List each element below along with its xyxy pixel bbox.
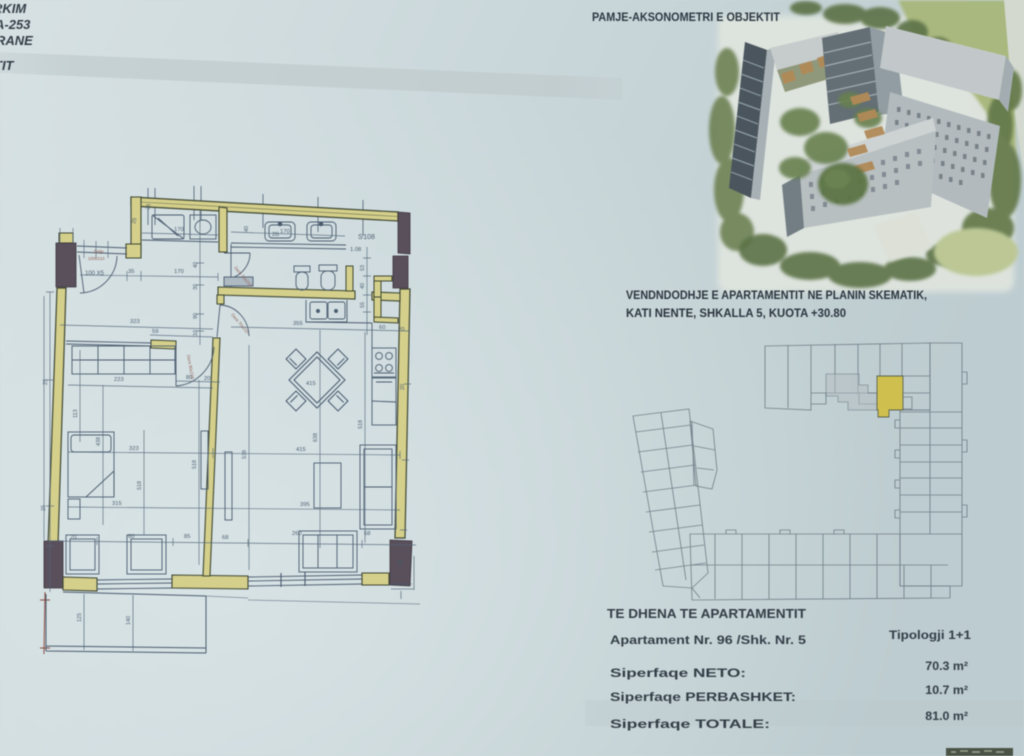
svg-text:Apartament Nr. 96 /Shk. Nr. 5: Apartament Nr. 96 /Shk. Nr. 5 — [610, 633, 806, 647]
svg-text:638: 638 — [313, 433, 319, 442]
svg-text:40: 40 — [244, 226, 250, 232]
svg-text:100 X5: 100 X5 — [85, 271, 105, 277]
svg-text:355: 355 — [293, 321, 303, 327]
svg-text:10.7 m²: 10.7 m² — [925, 683, 968, 697]
svg-text:68: 68 — [222, 535, 228, 541]
svg-text:Tipologji 1+1: Tipologji 1+1 — [889, 628, 971, 642]
svg-text:53: 53 — [360, 265, 366, 271]
svg-text:20: 20 — [400, 384, 406, 390]
svg-text:10: 10 — [193, 330, 199, 336]
svg-text:TIT: TIT — [0, 58, 15, 73]
svg-text:20: 20 — [398, 327, 404, 333]
svg-text:20: 20 — [204, 376, 210, 382]
svg-text:100x210: 100x210 — [88, 256, 105, 261]
svg-text:25: 25 — [43, 379, 49, 385]
svg-text:538: 538 — [242, 450, 248, 459]
svg-text:RKIM: RKIM — [0, 1, 27, 16]
svg-text:RANE: RANE — [0, 33, 33, 48]
svg-text:S 108: S 108 — [358, 234, 375, 241]
svg-text:85: 85 — [184, 534, 190, 540]
svg-text:25: 25 — [41, 505, 47, 511]
svg-text:VENDNDODHJE E APARTAMENTIT NE: VENDNDODHJE E APARTAMENTIT NE PLANIN SKE… — [626, 290, 927, 302]
svg-text:20: 20 — [398, 560, 404, 566]
svg-text:Siperfaqe NETO:: Siperfaqe NETO: — [610, 666, 746, 680]
svg-text:223: 223 — [114, 377, 124, 383]
svg-text:415: 415 — [306, 381, 316, 387]
svg-text:PAMJE-AKSONOMETRI E OBJEKTIT: PAMJE-AKSONOMETRI E OBJEKTIT — [592, 12, 780, 24]
svg-text:35: 35 — [128, 269, 134, 275]
svg-text:30: 30 — [193, 284, 199, 290]
svg-text:40: 40 — [360, 283, 366, 289]
svg-text:518: 518 — [192, 460, 198, 469]
svg-text:A-253: A-253 — [0, 17, 31, 32]
svg-text:438: 438 — [96, 437, 102, 446]
svg-text:TE DHENA TE APARTAMENTIT: TE DHENA TE APARTAMENTIT — [607, 606, 806, 621]
svg-text:60: 60 — [379, 325, 385, 331]
svg-text:Siperfaqe TOTALE:: Siperfaqe TOTALE: — [610, 717, 770, 731]
svg-text:125: 125 — [77, 613, 83, 622]
svg-text:59: 59 — [152, 329, 158, 335]
svg-text:40: 40 — [193, 262, 199, 268]
svg-text:518: 518 — [358, 420, 364, 429]
svg-text:260: 260 — [292, 531, 302, 537]
svg-text:170: 170 — [174, 269, 184, 275]
svg-text:170: 170 — [174, 227, 184, 233]
svg-text:KATI NENTE, SHKALLA 5, KUOTA +: KATI NENTE, SHKALLA 5, KUOTA +30.80 — [626, 308, 846, 320]
svg-text:68: 68 — [364, 531, 370, 537]
svg-text:70: 70 — [70, 535, 76, 541]
svg-text:81.0 m²: 81.0 m² — [925, 709, 968, 723]
svg-text:70.3 m²: 70.3 m² — [925, 659, 968, 673]
svg-text:323: 323 — [130, 319, 140, 325]
svg-text:2B: 2B — [272, 232, 279, 238]
svg-text:395: 395 — [300, 502, 310, 508]
svg-text:415: 415 — [296, 447, 306, 453]
svg-text:60: 60 — [128, 534, 134, 540]
svg-text:55: 55 — [360, 302, 366, 308]
svg-text:1.08: 1.08 — [350, 247, 361, 253]
svg-text:315: 315 — [112, 501, 122, 507]
svg-text:113: 113 — [73, 409, 79, 418]
svg-text:323: 323 — [129, 446, 139, 452]
svg-text:Dalje: Dalje — [94, 249, 104, 254]
svg-text:Siperfaqe PERBASHKET:: Siperfaqe PERBASHKET: — [610, 690, 796, 704]
svg-text:90: 90 — [193, 313, 199, 319]
svg-text:170: 170 — [280, 229, 290, 235]
svg-text:518: 518 — [137, 481, 143, 490]
svg-text:140: 140 — [126, 616, 132, 625]
